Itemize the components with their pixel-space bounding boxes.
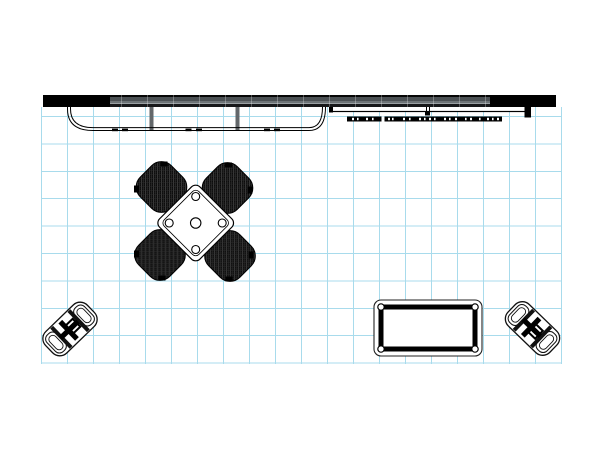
floor-plan-canvas <box>0 0 600 450</box>
backwall-panel-joints <box>43 95 556 107</box>
folding-stool-right <box>501 298 564 360</box>
display-table <box>374 300 482 356</box>
light-track <box>347 117 502 122</box>
backwall-left-black-panel <box>43 95 110 107</box>
counter-support-posts <box>150 107 240 131</box>
backwall-right-black-panel <box>490 95 556 107</box>
backwall <box>43 95 556 107</box>
reception-counter <box>68 107 326 131</box>
folding-stool-left <box>39 298 102 360</box>
floorplan-linework <box>0 0 600 450</box>
